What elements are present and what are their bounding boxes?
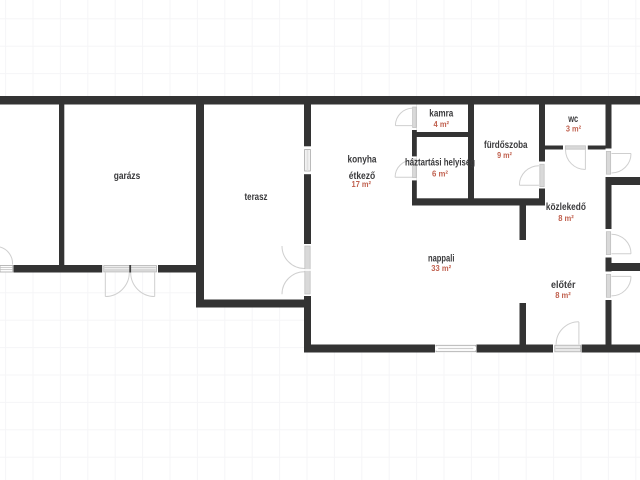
svg-text:kamra: kamra: [429, 107, 453, 119]
svg-text:4 m²: 4 m²: [434, 120, 450, 129]
svg-text:nappali: nappali: [428, 253, 455, 265]
svg-text:fürdőszoba: fürdőszoba: [484, 139, 528, 151]
svg-text:9 m²: 9 m²: [497, 151, 512, 160]
svg-text:előtér: előtér: [551, 279, 576, 291]
svg-text:közlekedő: közlekedő: [546, 201, 586, 213]
svg-text:8 m²: 8 m²: [558, 214, 574, 223]
svg-text:8 m²: 8 m²: [555, 291, 571, 300]
svg-text:garázs: garázs: [114, 170, 141, 182]
svg-text:17 m²: 17 m²: [352, 180, 372, 189]
svg-text:wc: wc: [567, 113, 578, 125]
svg-text:33 m²: 33 m²: [431, 264, 451, 273]
svg-text:6 m²: 6 m²: [432, 169, 448, 178]
svg-text:terasz: terasz: [245, 191, 268, 203]
svg-text:háztartási helyiség: háztartási helyiség: [405, 156, 475, 168]
svg-text:konyha: konyha: [348, 153, 377, 165]
svg-text:3 m²: 3 m²: [566, 125, 582, 134]
